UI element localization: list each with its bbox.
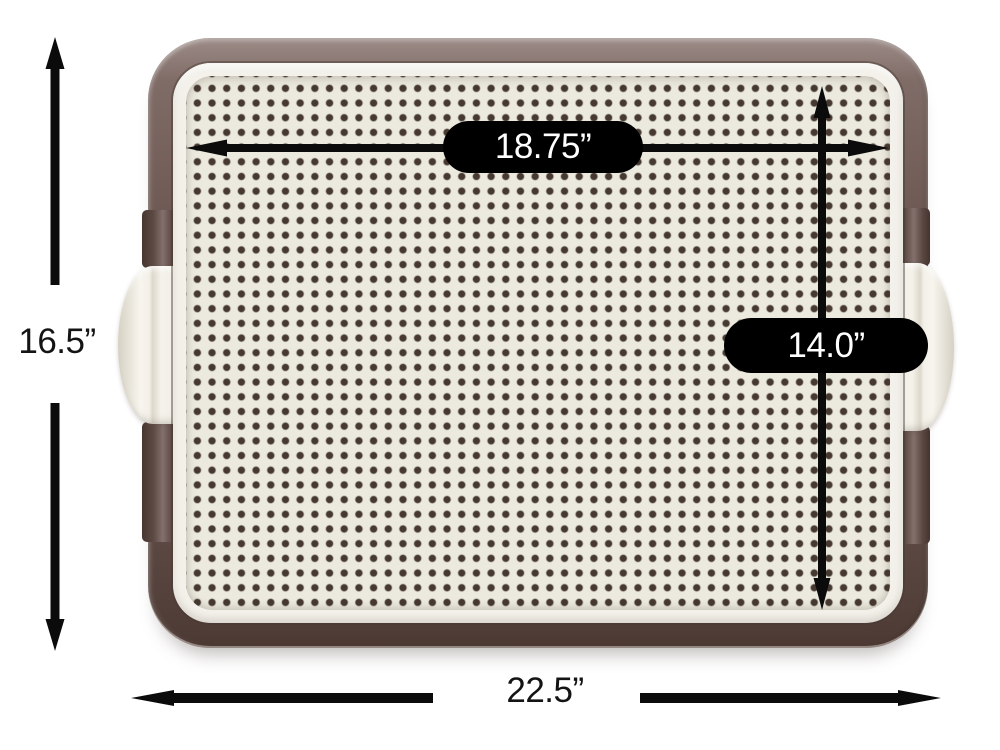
outer-width-value: 22.5” <box>506 671 583 711</box>
dimension-diagram: 18.75” 14.0” 16.5” 22.5” <box>0 0 1000 750</box>
inner-height-value: 14.0” <box>787 326 864 366</box>
inner-width-pill: 18.75” <box>443 121 643 173</box>
outer-height-value: 16.5” <box>18 322 95 362</box>
inner-height-pill: 14.0” <box>724 318 928 373</box>
dimension-arrows <box>0 0 1000 750</box>
inner-width-value: 18.75” <box>495 127 591 167</box>
